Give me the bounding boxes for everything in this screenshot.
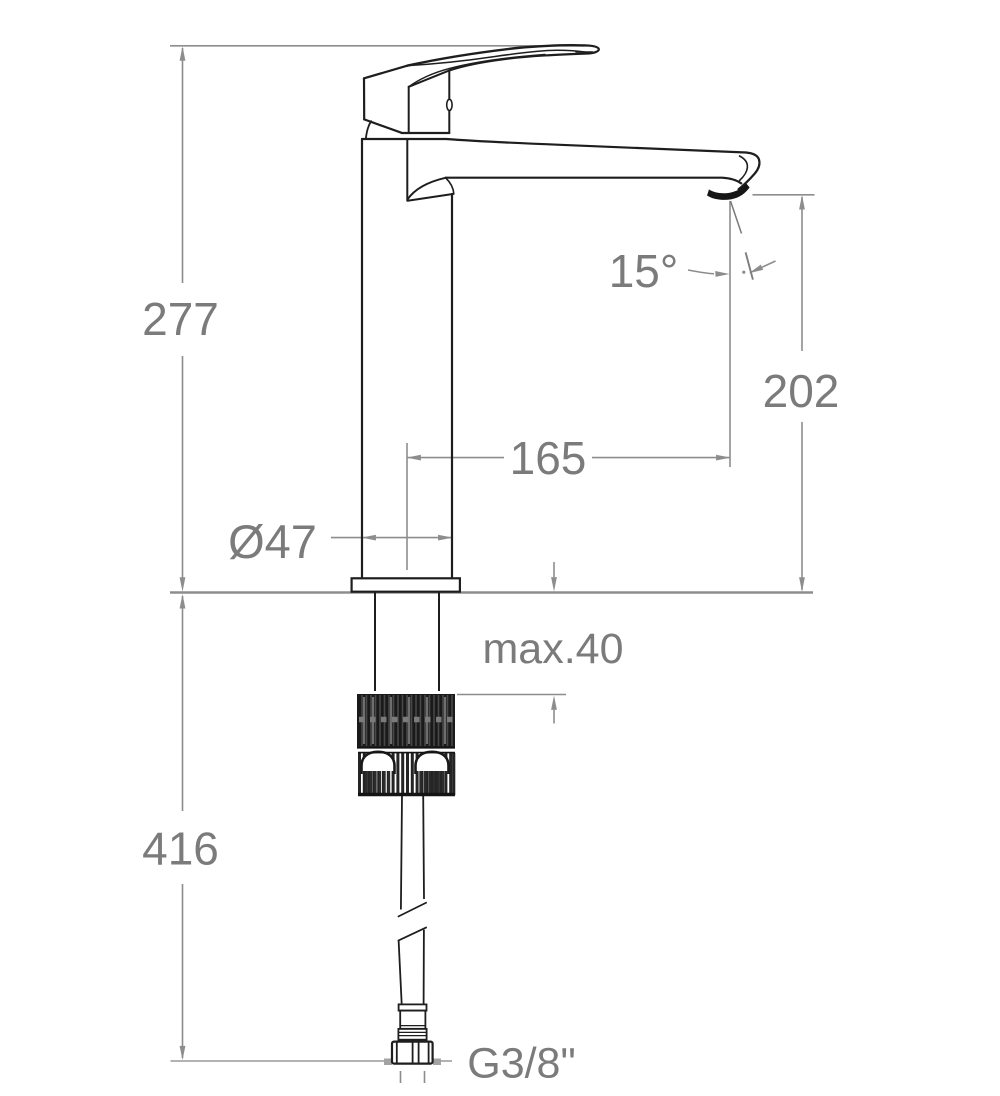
svg-text:G3/8": G3/8" [467,1040,576,1088]
svg-text:277: 277 [142,293,219,345]
svg-text:max.40: max.40 [482,625,623,673]
svg-text:Ø47: Ø47 [228,515,317,568]
svg-text:416: 416 [142,823,219,875]
svg-text:202: 202 [763,365,840,417]
svg-text:165: 165 [510,432,587,484]
svg-text:15°: 15° [609,245,679,297]
